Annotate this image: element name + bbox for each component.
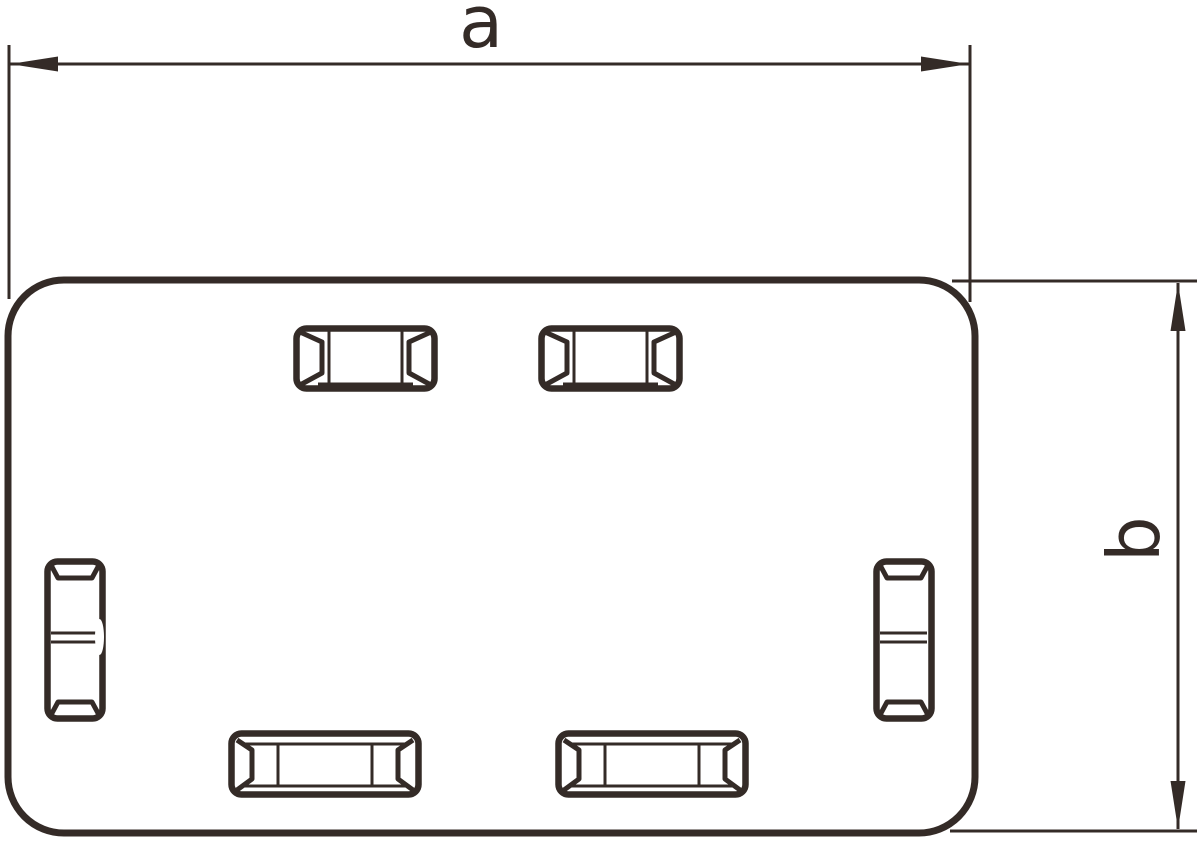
dimension-a: a: [9, 0, 970, 302]
dimension-b-label: b: [1092, 516, 1176, 562]
dimension-b-arrowhead-top: [1171, 283, 1186, 331]
dimension-a-arrowhead-left: [10, 57, 58, 72]
cover-body-outline: [8, 280, 975, 833]
dimension-a-label: a: [459, 0, 503, 64]
slot-side-left-notch: [95, 619, 104, 655]
cover-body: [8, 280, 975, 833]
technical-drawing: a b: [0, 0, 1201, 841]
drawing-canvas: a b: [0, 0, 1201, 841]
dimension-b-arrowhead-bottom: [1171, 781, 1186, 829]
dimension-b: b: [950, 281, 1197, 831]
dimension-a-arrowhead-right: [921, 57, 969, 72]
